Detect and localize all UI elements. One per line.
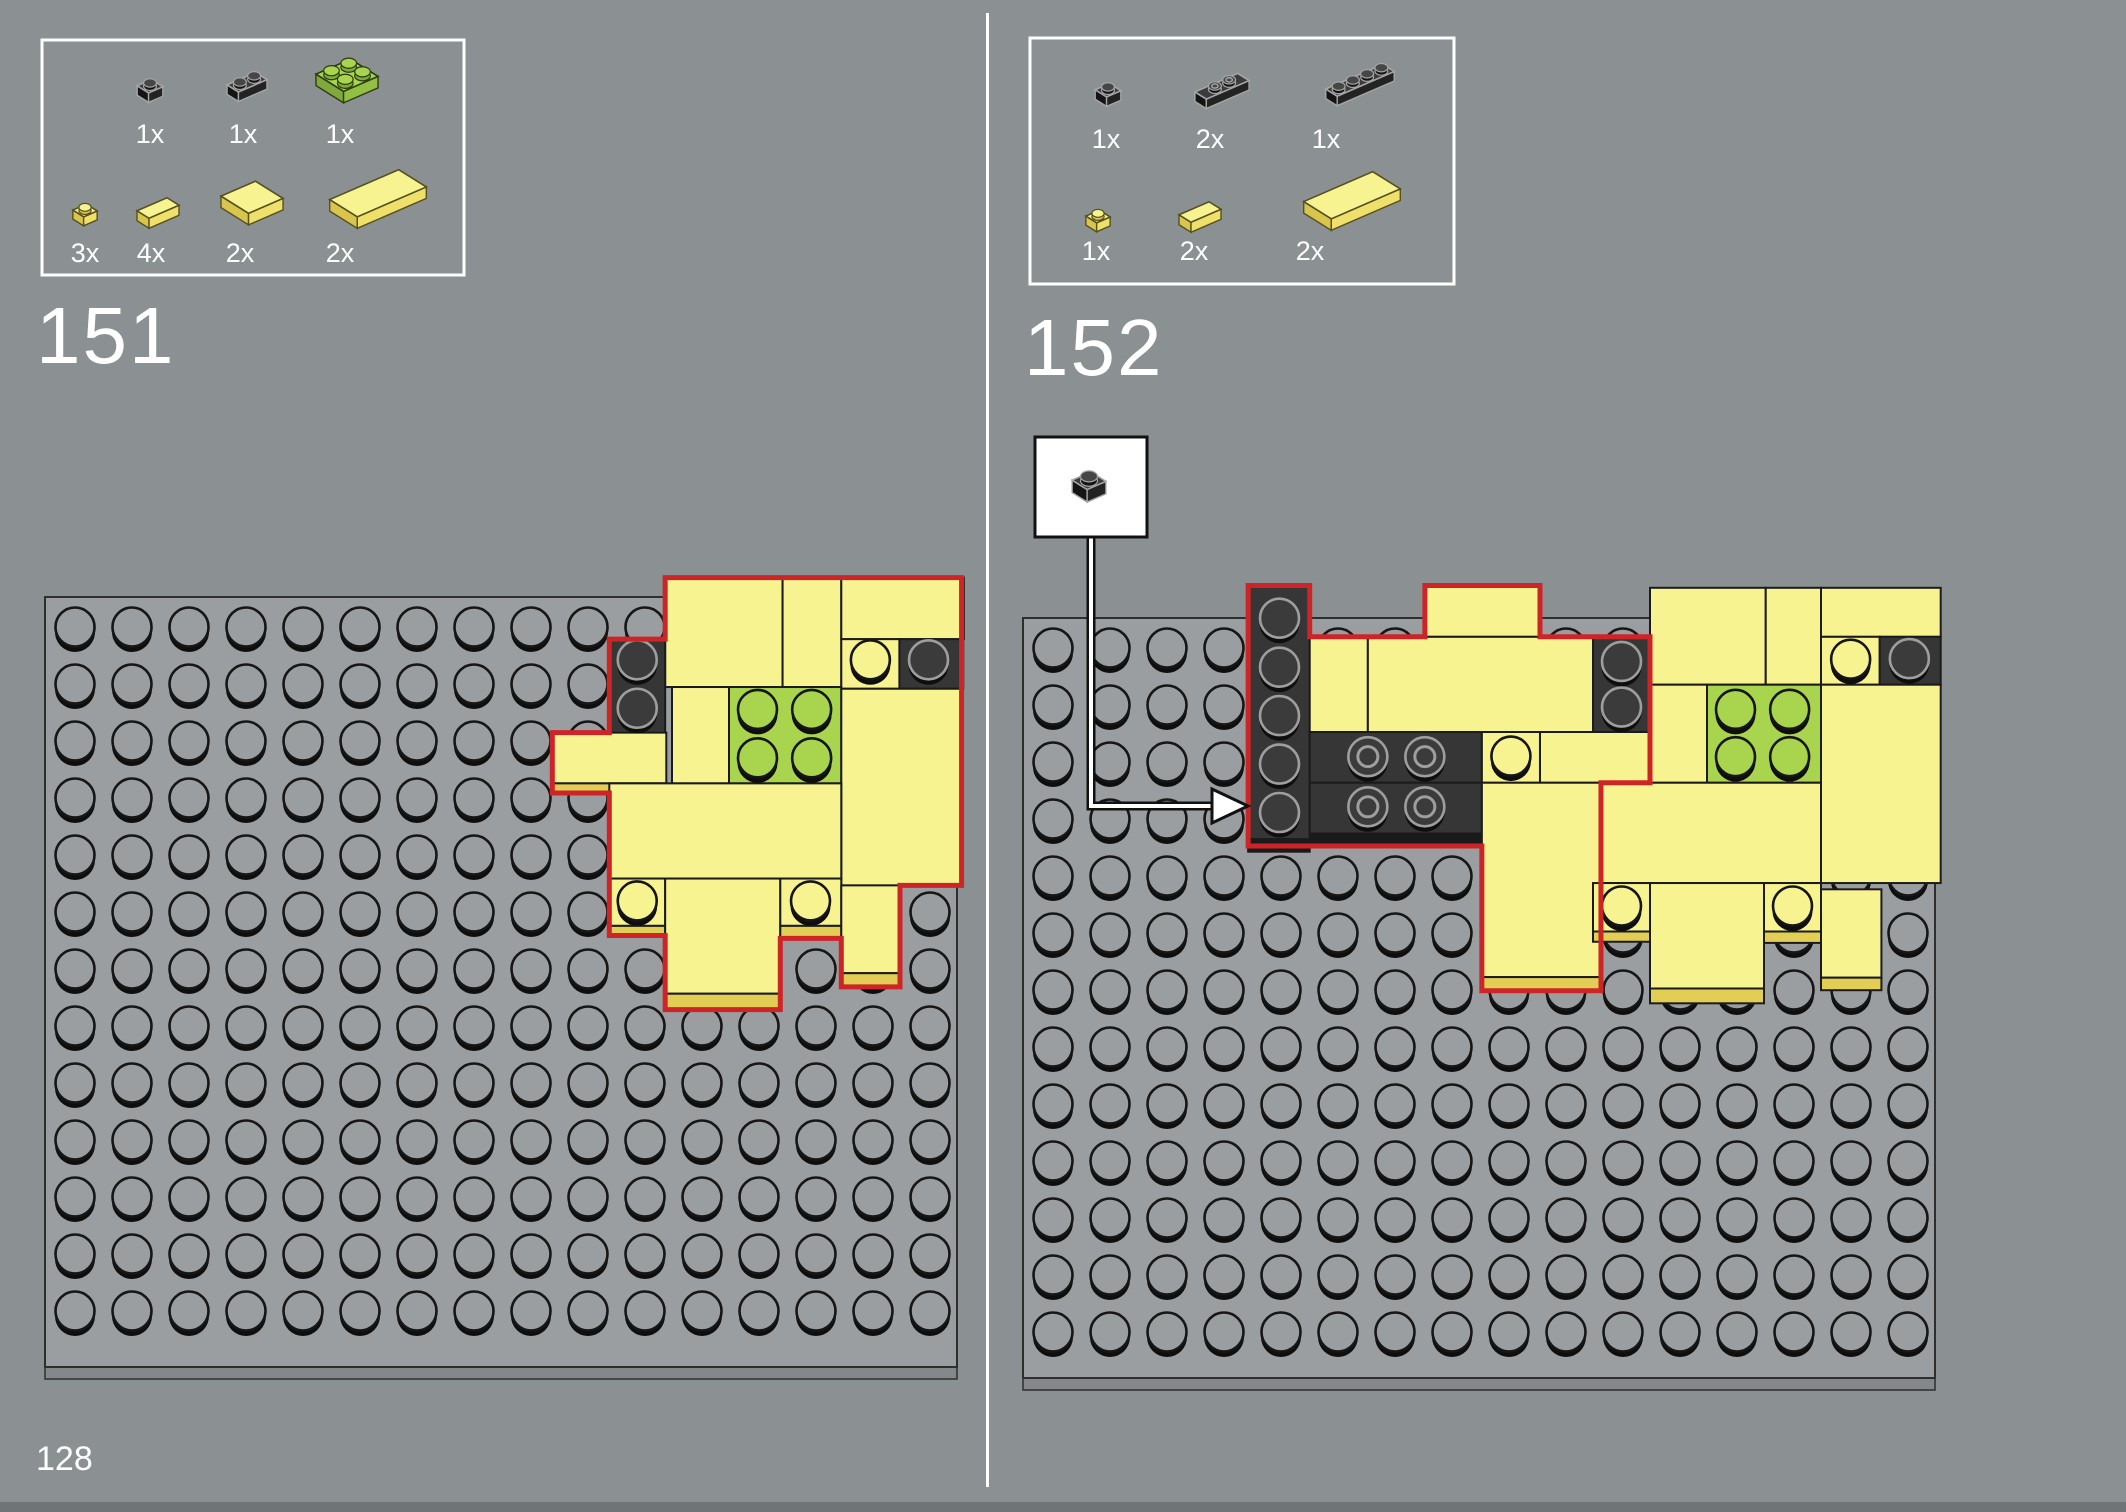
black-plate-1x1: 1x: [136, 79, 165, 149]
part-count-label: 2x: [226, 238, 255, 268]
yellow-tile-1x2: 4x: [137, 198, 179, 268]
plate-stud: [1319, 971, 1358, 1010]
plate-stud: [56, 1178, 95, 1217]
plate-stud: [512, 1121, 551, 1160]
yellow-piece: [665, 879, 780, 994]
part-count-label: 2x: [1196, 124, 1225, 154]
plate-stud: [1091, 1199, 1130, 1238]
plate-stud: [911, 1007, 950, 1046]
plate-stud: [56, 950, 95, 989]
plate-stud: [1490, 1199, 1529, 1238]
piece-side: [1821, 978, 1881, 991]
plate-stud: [626, 1007, 665, 1046]
plate-stud: [1433, 914, 1472, 953]
plate-stud: [512, 1235, 551, 1274]
plate-stud: [113, 1235, 152, 1274]
yellow-stud: [851, 640, 890, 679]
plate-stud: [1034, 1085, 1073, 1124]
dark-stud: [618, 689, 657, 728]
plate-stud: [284, 1292, 323, 1331]
plate-stud: [113, 1121, 152, 1160]
plate-stud: [56, 608, 95, 647]
plate-stud: [1376, 1313, 1415, 1352]
plate-stud: [797, 1178, 836, 1217]
plate-stud: [1775, 1313, 1814, 1352]
plate-stud: [170, 722, 209, 761]
part-stud: [248, 72, 261, 80]
plate-stud: [113, 1292, 152, 1331]
plate-stud: [1262, 1313, 1301, 1352]
yellow-stud: [1831, 640, 1870, 679]
black-piece: [1310, 732, 1482, 783]
plate-stud: [797, 1292, 836, 1331]
plate-stud: [1661, 1028, 1700, 1067]
plate-stud: [170, 836, 209, 875]
dark-stud: [909, 640, 948, 679]
black-piece: [1310, 783, 1482, 834]
plate-stud: [569, 1121, 608, 1160]
plate-stud: [1205, 1142, 1244, 1181]
spread-divider-line: [986, 13, 989, 1487]
plate-stud: [1262, 1028, 1301, 1067]
plate-stud: [626, 1064, 665, 1103]
yellow-piece: [1368, 637, 1593, 732]
plate-stud: [683, 1178, 722, 1217]
plate-stud: [1091, 1313, 1130, 1352]
plate-stud: [113, 950, 152, 989]
plate-stud: [1148, 1028, 1187, 1067]
plate-stud: [626, 950, 665, 989]
yellow-piece: [1650, 883, 1764, 988]
yellow-piece: [841, 689, 961, 886]
plate-stud: [1148, 971, 1187, 1010]
yellow-piece: [552, 733, 666, 784]
part-count-label: 3x: [71, 238, 100, 268]
plate-stud: [341, 836, 380, 875]
plate-stud: [341, 1007, 380, 1046]
plate-stud: [1547, 1028, 1586, 1067]
plate-stud: [56, 1121, 95, 1160]
plate-stud: [170, 665, 209, 704]
plate-stud: [227, 665, 266, 704]
plate-stud: [1091, 1142, 1130, 1181]
plate-stud: [1319, 1028, 1358, 1067]
plate-stud: [1718, 1028, 1757, 1067]
hollow-stud: [1348, 787, 1387, 826]
plate-stud: [227, 1121, 266, 1160]
plate-stud: [740, 1178, 779, 1217]
plate-stud: [113, 1007, 152, 1046]
plate-stud: [341, 1178, 380, 1217]
plate-stud: [1376, 914, 1415, 953]
plate-stud: [1034, 800, 1073, 839]
plate-stud: [512, 950, 551, 989]
yellow-stud: [1773, 886, 1812, 925]
plate-stud: [1319, 1313, 1358, 1352]
plate-stud: [1604, 1142, 1643, 1181]
plate-stud: [455, 1178, 494, 1217]
plate-stud: [170, 950, 209, 989]
plate-stud: [284, 779, 323, 818]
plate-stud: [284, 1064, 323, 1103]
plate-stud: [797, 950, 836, 989]
hollow-stud: [1405, 737, 1444, 776]
plate-stud: [1490, 1028, 1529, 1067]
plate-stud: [227, 1064, 266, 1103]
dark-stud: [1602, 642, 1641, 681]
plate-stud: [797, 1064, 836, 1103]
plate-stud: [1661, 1142, 1700, 1181]
part-stud: [1332, 82, 1345, 90]
plate-stud: [341, 779, 380, 818]
plate-stud: [1091, 1085, 1130, 1124]
plate-stud: [569, 1178, 608, 1217]
plate-stud: [1205, 686, 1244, 725]
dark-stud: [618, 640, 657, 679]
plate-stud: [1205, 1028, 1244, 1067]
plate-stud: [626, 1235, 665, 1274]
part-stud: [1102, 83, 1115, 91]
plate-stud: [1433, 1256, 1472, 1295]
plate-stud: [341, 950, 380, 989]
plate-stud: [1148, 743, 1187, 782]
plate-stud: [512, 779, 551, 818]
plate-stud: [683, 1121, 722, 1160]
yellow-tile-2x2: 2x: [221, 181, 283, 268]
part-count-label: 1x: [1092, 124, 1121, 154]
plate-stud: [911, 893, 950, 932]
plate-stud: [1832, 1313, 1871, 1352]
plate-stud: [284, 1121, 323, 1160]
plate-stud: [113, 893, 152, 932]
plate-stud: [170, 1007, 209, 1046]
black-jumper-plate-1x3: 2x: [1195, 73, 1249, 154]
part-count-label: 1x: [229, 119, 258, 149]
yellow-tile-2x4: 2x: [326, 170, 427, 268]
part-stud: [1361, 70, 1374, 78]
plate-stud: [1091, 1256, 1130, 1295]
plate-stud: [1262, 914, 1301, 953]
plate-stud: [1661, 1199, 1700, 1238]
plate-stud: [911, 950, 950, 989]
part-stud: [144, 79, 157, 87]
plate-stud: [284, 836, 323, 875]
plate-stud: [569, 608, 608, 647]
plate-stud: [797, 1007, 836, 1046]
plate-stud: [341, 1121, 380, 1160]
plate-stud: [398, 1007, 437, 1046]
plate-stud: [1718, 1313, 1757, 1352]
plate-stud: [1490, 1142, 1529, 1181]
plate-stud: [569, 950, 608, 989]
plate-stud: [1832, 1199, 1871, 1238]
plate-stud: [1034, 1142, 1073, 1181]
plate-stud: [911, 1178, 950, 1217]
plate-stud: [1148, 629, 1187, 668]
plate-stud: [1091, 857, 1130, 896]
plate-stud: [1034, 1028, 1073, 1067]
plate-stud: [398, 836, 437, 875]
yellow-piece: [1310, 637, 1368, 732]
plate-stud: [56, 1007, 95, 1046]
plate-stud: [569, 1235, 608, 1274]
part-stud: [337, 74, 353, 84]
plate-stud: [1319, 857, 1358, 896]
plate-stud: [1604, 1256, 1643, 1295]
part-count-label: 4x: [137, 238, 166, 268]
page-number: 128: [36, 1442, 93, 1476]
green-stud: [1716, 690, 1755, 729]
plate-stud: [1262, 1085, 1301, 1124]
yellow-piece: [1425, 586, 1540, 637]
plate-stud: [398, 722, 437, 761]
plate-stud: [1490, 1256, 1529, 1295]
plate-stud: [1775, 971, 1814, 1010]
dark-stud: [1260, 648, 1299, 687]
plate-stud: [797, 1121, 836, 1160]
hollow-stud: [1405, 787, 1444, 826]
green-stud: [1770, 737, 1809, 776]
plate-stud: [1376, 1199, 1415, 1238]
dark-stud: [1602, 688, 1641, 727]
yellow-piece: [1821, 889, 1881, 977]
plate-stud: [1889, 1142, 1928, 1181]
plate-stud: [512, 608, 551, 647]
plate-stud: [227, 893, 266, 932]
plate-stud: [1718, 1085, 1757, 1124]
plate-stud: [455, 1235, 494, 1274]
plate-stud: [1262, 1199, 1301, 1238]
plate-stud: [1775, 1199, 1814, 1238]
yellow-piece: [1650, 588, 1766, 685]
plate-stud: [569, 1064, 608, 1103]
plate-stud: [1433, 1313, 1472, 1352]
instruction-graphics: 1x1x1x3x4x2x2x1x2x1x1x2x2x: [0, 0, 2126, 1512]
plate-stud: [626, 1292, 665, 1331]
yellow-stud: [791, 881, 830, 920]
plate-stud: [1319, 1142, 1358, 1181]
plate-stud: [170, 1064, 209, 1103]
plate-stud: [1775, 1142, 1814, 1181]
plate-stud: [56, 1064, 95, 1103]
plate-stud: [1262, 857, 1301, 896]
plate-stud: [170, 779, 209, 818]
yellow-stud: [1491, 737, 1530, 776]
baseplate-edge: [45, 1367, 957, 1379]
green-plate-2x2: 1x: [316, 58, 378, 149]
plate-stud: [1319, 1256, 1358, 1295]
plate-stud: [170, 608, 209, 647]
plate-stud: [1604, 1199, 1643, 1238]
plate-stud: [56, 836, 95, 875]
plate-stud: [854, 1064, 893, 1103]
plate-stud: [227, 722, 266, 761]
yellow-stud: [618, 881, 657, 920]
plate-stud: [1604, 971, 1643, 1010]
plate-stud: [455, 665, 494, 704]
plate-stud: [56, 779, 95, 818]
plate-stud: [56, 665, 95, 704]
plate-stud: [1319, 1085, 1358, 1124]
dark-stud: [1890, 639, 1929, 678]
plate-stud: [1034, 1256, 1073, 1295]
part-stud: [233, 78, 246, 86]
part-count-label: 1x: [326, 119, 355, 149]
plate-stud: [398, 1235, 437, 1274]
plate-stud: [1376, 1085, 1415, 1124]
plate-stud: [113, 665, 152, 704]
plate-stud: [113, 836, 152, 875]
plate-stud: [854, 1121, 893, 1160]
dark-stud: [1260, 793, 1299, 832]
plate-stud: [284, 722, 323, 761]
plate-stud: [455, 893, 494, 932]
yellow-tile-1x2: 2x: [1179, 202, 1221, 266]
yellow-piece: [841, 578, 964, 640]
plate-stud: [1547, 1256, 1586, 1295]
plate-stud: [740, 1292, 779, 1331]
plate-stud: [1376, 1142, 1415, 1181]
plate-stud: [1205, 1085, 1244, 1124]
green-stud: [792, 738, 831, 777]
yellow-piece: [665, 578, 782, 687]
plate-stud: [455, 836, 494, 875]
plate-stud: [455, 1007, 494, 1046]
plate-stud: [1604, 1085, 1643, 1124]
plate-stud: [854, 1178, 893, 1217]
step-152: 1x2x1x1x2x2x: [1023, 38, 1941, 1390]
plate-stud: [1205, 1256, 1244, 1295]
plate-stud: [1148, 686, 1187, 725]
plate-stud: [341, 893, 380, 932]
yellow-piece: [1601, 783, 1821, 883]
plate-stud: [512, 1178, 551, 1217]
part-stud: [1346, 76, 1359, 84]
plate-stud: [1034, 686, 1073, 725]
plate-stud: [1832, 1256, 1871, 1295]
yellow-stud: [1602, 886, 1641, 925]
plate-stud: [341, 722, 380, 761]
plate-stud: [1148, 1142, 1187, 1181]
plate-stud: [1547, 1313, 1586, 1352]
plate-stud: [1718, 1199, 1757, 1238]
plate-stud: [227, 1235, 266, 1274]
plate-stud: [1718, 1142, 1757, 1181]
black-plate-1x4: 1x: [1312, 63, 1394, 154]
plate-stud: [911, 1121, 950, 1160]
plate-stud: [854, 1292, 893, 1331]
plate-stud: [170, 1121, 209, 1160]
plate-stud: [911, 1064, 950, 1103]
plate-stud: [1433, 1085, 1472, 1124]
part-stud: [1223, 76, 1236, 84]
part-count-label: 2x: [1180, 236, 1209, 266]
plate-stud: [1889, 1313, 1928, 1352]
plate-stud: [56, 1235, 95, 1274]
plate-stud: [512, 893, 551, 932]
plate-stud: [512, 836, 551, 875]
plate-stud: [227, 1292, 266, 1331]
plate-stud: [512, 1064, 551, 1103]
part-stud: [1208, 82, 1221, 90]
plate-stud: [1889, 1085, 1928, 1124]
step-number-152: 152: [1024, 308, 1163, 388]
plate-stud: [284, 1235, 323, 1274]
plate-stud: [683, 1235, 722, 1274]
plate-stud: [1490, 1313, 1529, 1352]
plate-stud: [1775, 1028, 1814, 1067]
plate-stud: [398, 665, 437, 704]
plate-stud: [1433, 1142, 1472, 1181]
plate-stud: [1775, 1256, 1814, 1295]
plate-stud: [398, 893, 437, 932]
plate-stud: [455, 1064, 494, 1103]
plate-stud: [227, 950, 266, 989]
plate-stud: [1148, 1085, 1187, 1124]
plate-stud: [455, 608, 494, 647]
green-stud: [792, 690, 831, 729]
plate-stud: [626, 1121, 665, 1160]
plate-stud: [398, 608, 437, 647]
plate-stud: [1148, 1256, 1187, 1295]
plate-stud: [398, 1121, 437, 1160]
plate-stud: [1205, 1199, 1244, 1238]
plate-stud: [227, 608, 266, 647]
part-stud: [355, 67, 371, 77]
green-stud: [1770, 690, 1809, 729]
plate-stud: [1034, 1199, 1073, 1238]
plate-stud: [227, 1178, 266, 1217]
plate-stud: [398, 1064, 437, 1103]
baseplate-edge: [1023, 1378, 1935, 1390]
plate-stud: [284, 1178, 323, 1217]
plate-stud: [1148, 1199, 1187, 1238]
plate-stud: [1547, 1142, 1586, 1181]
plate-stud: [1319, 1199, 1358, 1238]
plate-stud: [455, 1292, 494, 1331]
plate-stud: [569, 1007, 608, 1046]
dark-stud: [1260, 745, 1299, 784]
plate-stud: [1889, 1028, 1928, 1067]
instruction-page: 1x1x1x3x4x2x2x1x2x1x1x2x2x 151 152 128: [0, 0, 2126, 1512]
plate-stud: [113, 1178, 152, 1217]
plate-stud: [740, 1121, 779, 1160]
plate-stud: [56, 722, 95, 761]
plate-stud: [170, 1178, 209, 1217]
plate-stud: [1034, 914, 1073, 953]
part-stud: [341, 58, 357, 68]
plate-stud: [1262, 1142, 1301, 1181]
plate-stud: [341, 608, 380, 647]
plate-stud: [1661, 1256, 1700, 1295]
plate-stud: [797, 1235, 836, 1274]
part-count-label: 1x: [1312, 124, 1341, 154]
plate-stud: [1148, 1313, 1187, 1352]
plate-stud: [284, 1007, 323, 1046]
plate-stud: [1091, 629, 1130, 668]
plate-stud: [455, 722, 494, 761]
yellow-plate-1x1: 1x: [1082, 209, 1111, 266]
plate-stud: [170, 1235, 209, 1274]
plate-stud: [740, 1007, 779, 1046]
plate-stud: [854, 1007, 893, 1046]
black-plate-1x1: 1x: [1092, 83, 1121, 154]
plate-stud: [170, 893, 209, 932]
plate-stud: [455, 779, 494, 818]
dark-stud: [1260, 696, 1299, 735]
piece-side: [1650, 989, 1764, 1004]
plate-stud: [284, 665, 323, 704]
